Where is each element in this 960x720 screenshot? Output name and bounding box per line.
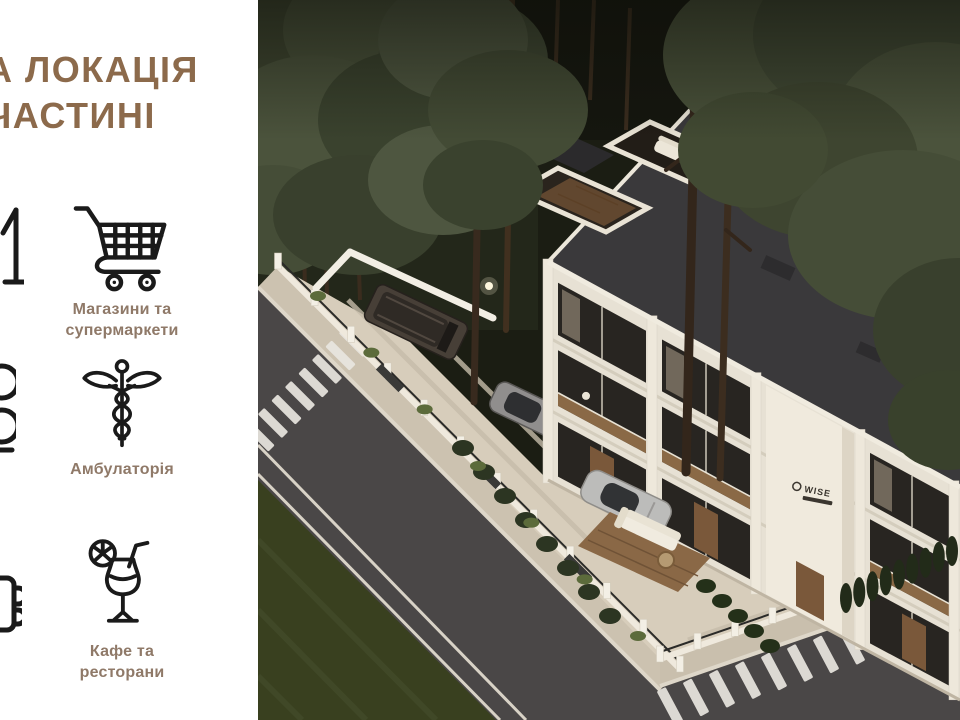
spire-icon-partial (0, 198, 24, 294)
caduceus-icon (76, 358, 168, 452)
feature-cafes-label: Кафе та ресторани (80, 641, 165, 683)
feature-shops-label: Магазини та супермаркети (66, 299, 179, 341)
title-line-2: ЧАСТИНІ (0, 93, 199, 139)
shopping-cart-icon (72, 196, 172, 292)
mug-icon-partial (0, 572, 22, 642)
circles-icon-partial (0, 352, 16, 458)
coffee-table (658, 552, 674, 568)
feature-cafes: Кафе та ресторани (36, 534, 208, 683)
garden-lamp (480, 277, 498, 295)
cocktail-icon (80, 534, 164, 634)
top-vignette (258, 0, 960, 140)
info-panel: А ЛОКАЦІЯ ЧАСТИНІ (0, 0, 258, 720)
feature-clinic: Амбулаторія (36, 358, 208, 480)
feature-shops: Магазини та супермаркети (36, 196, 208, 341)
feature-clinic-label: Амбулаторія (70, 459, 174, 480)
render-svg: WISE (258, 0, 960, 720)
slide: А ЛОКАЦІЯ ЧАСТИНІ (0, 0, 960, 720)
title-line-1: А ЛОКАЦІЯ (0, 47, 199, 93)
page-title: А ЛОКАЦІЯ ЧАСТИНІ (0, 47, 199, 139)
